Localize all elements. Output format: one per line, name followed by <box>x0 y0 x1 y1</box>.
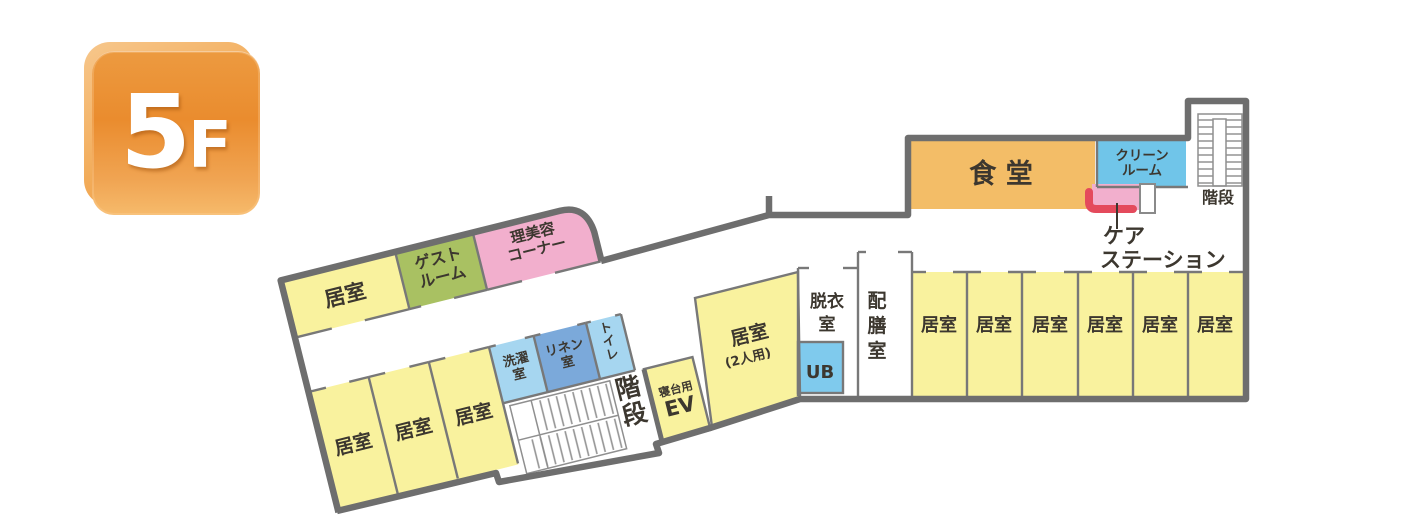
label-room-r5: 居室 <box>1142 314 1178 336</box>
label-serving-room: 配膳室 <box>866 290 886 362</box>
label-dining-hall: 食 堂 <box>969 158 1032 190</box>
label-unit-bath: UB <box>806 362 834 383</box>
label-care-station-2: ステーション <box>1100 248 1226 272</box>
label-room-r6: 居室 <box>1197 314 1233 336</box>
label-room-r2: 居室 <box>976 314 1012 336</box>
label-stairs-tower: 階段 <box>1202 188 1235 207</box>
floor-plan: 居室 ゲストルーム 理美容コーナー 居室 居室 居室 洗濯室 リネン室 トイレ … <box>0 0 1412 526</box>
floor-plan-page: 5F <box>0 0 1412 526</box>
label-clean-room: クリーンルーム <box>1115 148 1168 179</box>
care-station-door <box>1140 184 1155 213</box>
label-room-r1: 居室 <box>921 314 957 336</box>
label-room-r3: 居室 <box>1032 314 1068 336</box>
label-care-station-1: ケア <box>1103 224 1145 248</box>
label-room-r4: 居室 <box>1087 314 1123 336</box>
stairs-tower-well <box>1213 119 1226 186</box>
